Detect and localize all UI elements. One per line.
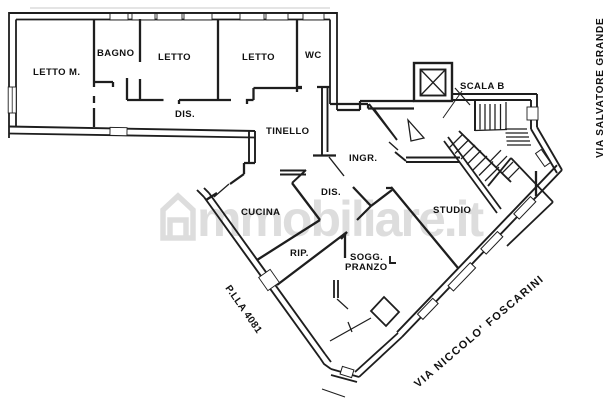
svg-text:SCALA B: SCALA B	[460, 81, 505, 92]
svg-text:WC: WC	[305, 50, 322, 61]
svg-text:STUDIO: STUDIO	[433, 205, 471, 216]
svg-text:BAGNO: BAGNO	[97, 48, 134, 59]
svg-text:VIA SALVATORE GRANDE: VIA SALVATORE GRANDE	[595, 18, 606, 158]
svg-text:RIP.: RIP.	[290, 248, 309, 259]
svg-text:LETTO: LETTO	[242, 52, 275, 63]
svg-text:LETTO: LETTO	[158, 52, 191, 63]
svg-text:DIS.: DIS.	[175, 109, 195, 120]
svg-text:CUCINA: CUCINA	[241, 207, 280, 218]
svg-text:DIS.: DIS.	[321, 187, 341, 198]
svg-text:LETTO M.: LETTO M.	[33, 67, 80, 78]
svg-text:TINELLO: TINELLO	[266, 126, 309, 137]
svg-text:PRANZO: PRANZO	[345, 262, 388, 273]
svg-text:INGR.: INGR.	[349, 153, 377, 164]
